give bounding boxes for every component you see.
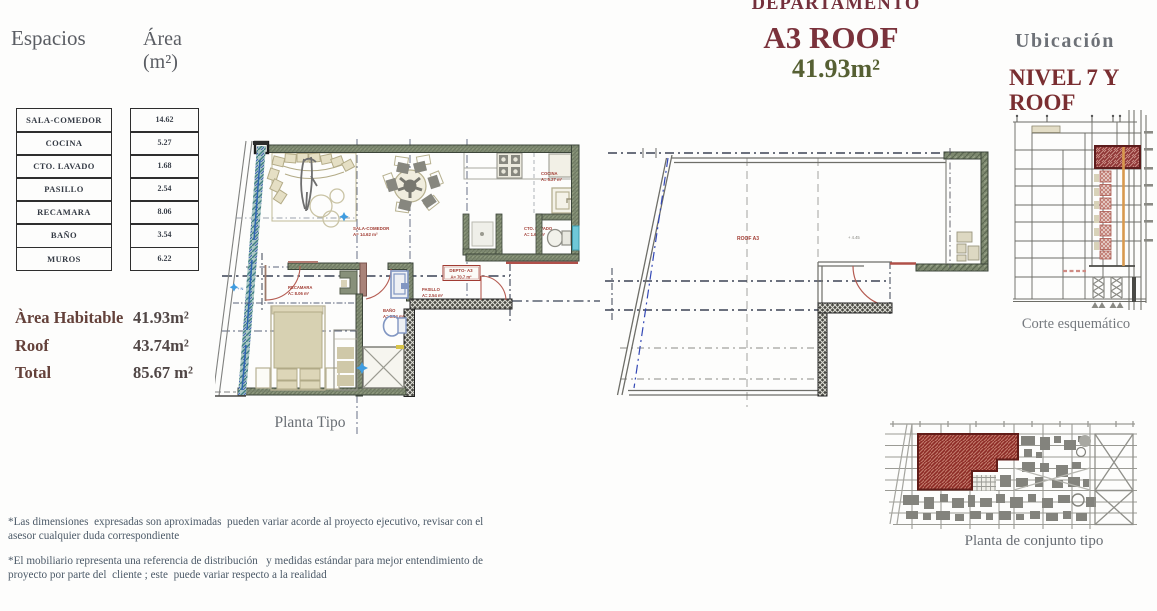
svg-text:+ 4.45: + 4.45 xyxy=(848,235,860,240)
svg-text:A= 8.06 m²: A= 8.06 m² xyxy=(288,291,310,296)
svg-text:BAÑO: BAÑO xyxy=(383,308,396,313)
svg-text:RECAMARA: RECAMARA xyxy=(288,285,312,290)
svg-text:A= 5.27 m²: A= 5.27 m² xyxy=(541,177,563,182)
svg-text:SALA-COMEDOR: SALA-COMEDOR xyxy=(353,226,390,231)
svg-text:PASILLO: PASILLO xyxy=(422,287,441,292)
svg-text:A= 1.68 m²: A= 1.68 m² xyxy=(524,232,546,237)
svg-text:COCINA: COCINA xyxy=(541,171,558,176)
svg-text:+ N: + N xyxy=(237,286,243,291)
svg-text:A= 70.7 m²: A= 70.7 m² xyxy=(450,275,472,280)
svg-text:DEPTO- A3: DEPTO- A3 xyxy=(449,268,473,273)
svg-text:ROOF A3: ROOF A3 xyxy=(737,236,759,242)
svg-text:A= 2.54 m²: A= 2.54 m² xyxy=(422,293,444,298)
svg-text:A= 14.62 m²: A= 14.62 m² xyxy=(353,232,378,237)
